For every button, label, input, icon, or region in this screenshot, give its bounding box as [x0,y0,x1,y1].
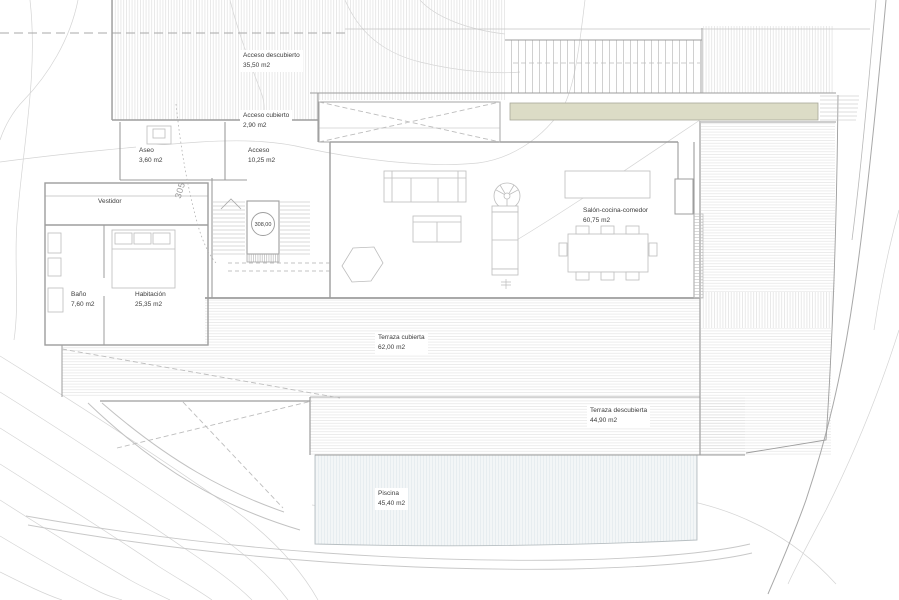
room-label-terraza-descubierta: Terraza descubierta 44,90 m2 [587,405,650,427]
room-label-bano: Baño 7,60 m2 [68,289,98,311]
room-area: 2,90 m2 [243,121,289,131]
bench [492,206,518,212]
east-wall-detail [694,214,703,298]
room-name: Baño [71,290,95,300]
room-area: 45,40 m2 [378,499,405,509]
kitchen-column [675,179,693,214]
retaining-curves [88,403,300,530]
pillow [153,233,170,244]
room-name: Habitación [135,290,166,300]
room-name: Terraza cubierta [378,333,425,343]
upper-stairs [505,40,702,93]
chair [576,226,589,234]
room-name: Salón-cocina-comedor [583,206,648,216]
open-terrace-deck [310,397,745,455]
pillow [115,233,132,244]
room-label-salon: Salón-cocina-comedor 60,75 m2 [580,205,651,227]
room-label-habitacion: Habitación 25,35 m2 [132,289,169,311]
room-label-vestidor: Vestidor [95,196,125,208]
room-area: 25,35 m2 [135,300,166,310]
room-area: 10,25 m2 [248,156,275,166]
room-label-acceso-descubierto: Acceso descubierto 35,50 m2 [240,50,303,72]
dining-table [568,234,648,272]
room-label-acceso-cubierto: Acceso cubierto 2,90 m2 [240,110,292,132]
side-steps [820,96,859,120]
bath-fixture [48,288,63,312]
room-label-aseo: Aseo 3,60 m2 [136,145,166,167]
room-name: Vestidor [98,197,122,207]
room-label-acceso: Acceso 10,25 m2 [245,145,278,167]
rug-hexagon [342,247,383,282]
chair [626,272,639,280]
chair [576,272,589,280]
room-area: 62,00 m2 [378,343,425,353]
room-area: 35,50 m2 [243,61,300,71]
floor-plan-canvas: Acceso descubierto 35,50 m2 Acceso cubie… [0,0,899,600]
room-name: Aseo [139,146,163,156]
bath-fixture [48,258,61,276]
room-area: 3,60 m2 [139,156,163,166]
level-marker-label: 308,00 [248,221,278,229]
stair-core [213,199,330,271]
pillow [134,233,151,244]
chair [601,226,614,234]
kitchen-island [565,171,650,198]
room-area: 44,90 m2 [590,416,647,426]
room-label-terraza-cubierta: Terraza cubierta 62,00 m2 [375,332,428,354]
room-label-piscina: Piscina 45,40 m2 [375,488,408,510]
room-name: Acceso descubierto [243,51,300,61]
entry-porch [319,102,500,142]
room-area: 60,75 m2 [583,216,648,226]
room-name: Terraza descubierta [590,406,647,416]
chair [649,243,657,256]
room-area: 7,60 m2 [71,300,95,310]
pool [315,455,697,546]
room-name: Piscina [378,489,405,499]
planter-strip [510,103,818,120]
bath-fixture [48,233,61,253]
chair [601,272,614,280]
sofa-large [384,171,466,202]
room-name: Acceso [248,146,275,156]
stair-direction-arrow [221,199,241,209]
chair [626,226,639,234]
chair [559,243,567,256]
room-name: Acceso cubierto [243,111,289,121]
